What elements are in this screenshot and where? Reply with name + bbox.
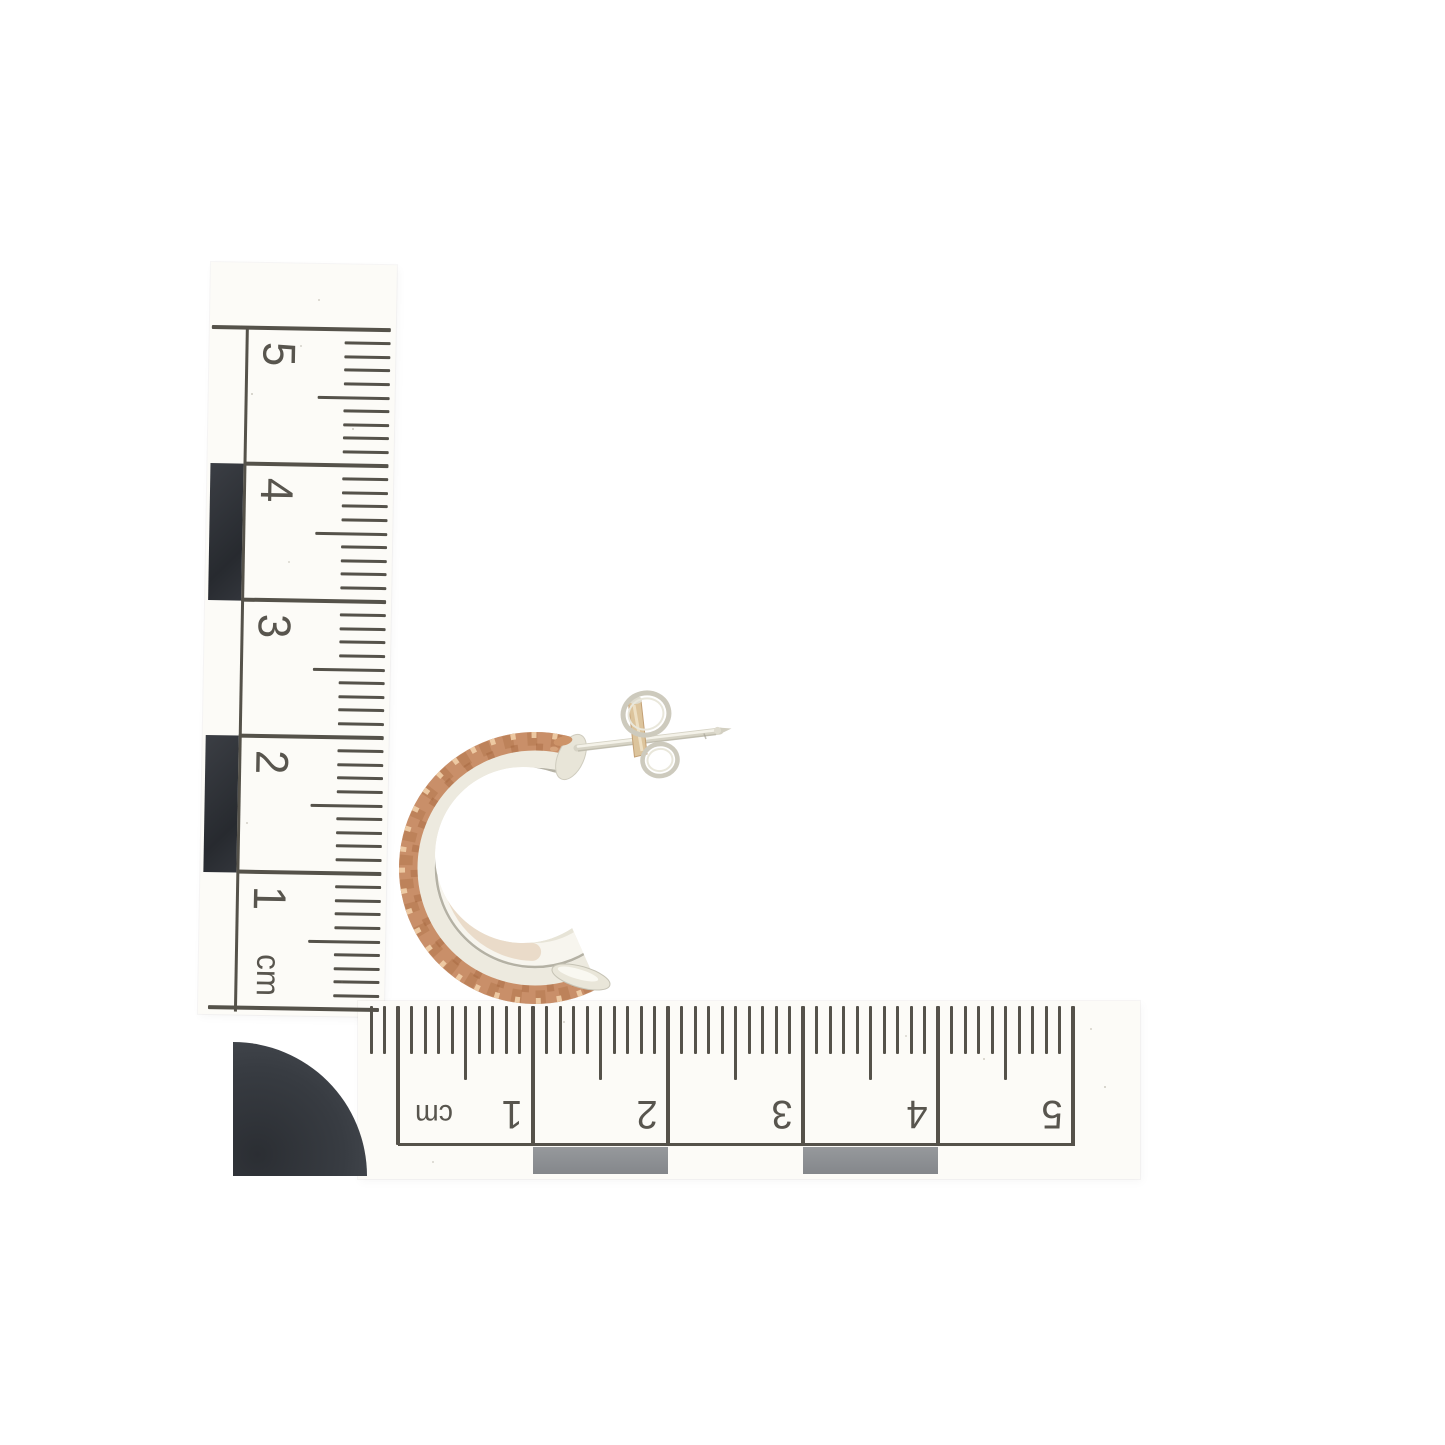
ruler-tick xyxy=(342,477,388,481)
corner-quarter-circle-marker xyxy=(233,1042,367,1176)
ruler-tick xyxy=(801,1006,804,1145)
ruler-tick xyxy=(337,763,383,767)
ruler-tick xyxy=(842,1006,845,1054)
ruler-tick xyxy=(815,1006,818,1054)
ruler-tick xyxy=(236,870,381,876)
ruler-tick xyxy=(950,1006,953,1054)
ruler-tick xyxy=(336,831,382,835)
ruler-tick xyxy=(344,369,390,373)
ruler-tick xyxy=(896,1006,899,1054)
ruler-tick xyxy=(910,1006,913,1054)
horizontal-scale-bar-1-2 xyxy=(533,1147,668,1174)
ruler-tick xyxy=(338,722,384,726)
earring-hoop xyxy=(398,730,672,1005)
ruler-tick xyxy=(334,953,380,957)
ruler-tick xyxy=(856,1006,859,1054)
ruler-tick xyxy=(829,1006,832,1054)
vertical-ruler-label-5: 5 xyxy=(256,342,302,367)
ruler-tick xyxy=(341,545,387,549)
butterfly-ring-top xyxy=(619,688,674,740)
ruler-tick xyxy=(336,858,382,862)
ruler-tick xyxy=(336,845,382,849)
dust-specks xyxy=(0,0,2,2)
ruler-tick xyxy=(239,734,384,740)
ruler-tick xyxy=(344,355,390,359)
ruler-tick xyxy=(339,654,385,658)
vertical-scale-block-2-1 xyxy=(203,735,238,873)
ruler-tick xyxy=(977,1006,980,1054)
ruler-tick xyxy=(334,967,380,971)
ruler-tick xyxy=(340,586,386,590)
ruler-tick xyxy=(343,423,389,427)
earring-hoop-groove-line xyxy=(436,769,634,967)
ruler-tick xyxy=(1058,1006,1061,1054)
earring-photo xyxy=(380,650,770,1050)
ruler-tick xyxy=(991,1006,994,1054)
vertical-ruler-label-4: 4 xyxy=(254,478,300,503)
ruler-tick xyxy=(883,1006,886,1054)
ruler-tick xyxy=(337,749,383,753)
ruler-tick xyxy=(775,1006,778,1054)
ruler-tick xyxy=(337,777,383,781)
ruler-tick xyxy=(241,598,386,604)
ruler-tick xyxy=(308,939,380,943)
horizontal-ruler-label-1: 1 xyxy=(501,1094,522,1134)
ruler-tick xyxy=(344,382,390,386)
ruler-tick xyxy=(343,450,389,454)
ruler-tick xyxy=(345,341,391,345)
ruler-tick xyxy=(334,926,380,930)
ruler-tick xyxy=(341,559,387,563)
horizontal-scale-bar-3-4 xyxy=(803,1147,938,1174)
ruler-tick xyxy=(333,981,379,985)
ruler-tick xyxy=(1045,1006,1048,1054)
horizontal-ruler-label-4: 4 xyxy=(906,1094,927,1134)
ruler-tick xyxy=(338,695,384,699)
horizontal-ruler-unit-label: cm xyxy=(415,1099,453,1129)
ruler-tick xyxy=(340,613,386,617)
ruler-tick xyxy=(318,395,390,399)
vertical-ruler-label-3: 3 xyxy=(251,614,297,639)
vertical-ruler-unit-label: cm xyxy=(252,954,286,996)
horizontal-ruler-baseline xyxy=(398,1143,1075,1146)
vertical-ruler-ink: 5 4 3 2 1 cm xyxy=(198,262,397,1017)
ruler-tick xyxy=(313,667,385,671)
ruler-tick xyxy=(343,437,389,441)
end-face-gold-speck xyxy=(550,747,558,752)
ruler-tick xyxy=(788,1006,791,1054)
vertical-ruler-label-1: 1 xyxy=(247,886,293,911)
ruler-tick xyxy=(341,573,387,577)
ruler-tick xyxy=(212,325,391,332)
ruler-tick xyxy=(1018,1006,1021,1054)
horizontal-ruler-label-5: 5 xyxy=(1041,1094,1062,1134)
ruler-tick xyxy=(338,709,384,713)
ruler-tick xyxy=(936,1006,939,1145)
vertical-ruler-label-2: 2 xyxy=(249,750,295,775)
vertical-scale-block-4-3 xyxy=(208,463,243,601)
ruler-tick xyxy=(869,1006,872,1080)
ruler-tick xyxy=(1031,1006,1034,1054)
butterfly-ring-bottom-inner xyxy=(646,747,674,773)
ruler-tick xyxy=(335,899,381,903)
ruler-tick xyxy=(341,518,387,522)
ruler-tick xyxy=(340,627,386,631)
ruler-tick xyxy=(964,1006,967,1054)
ruler-tick xyxy=(311,803,383,807)
ruler-tick xyxy=(923,1006,926,1054)
ruler-tick xyxy=(1004,1006,1007,1080)
ruler-tick xyxy=(343,409,389,413)
ruler-tick xyxy=(315,531,387,535)
ruler-tick xyxy=(339,641,385,645)
ruler-tick xyxy=(243,462,388,468)
ruler-tick xyxy=(335,885,381,889)
ruler-tick xyxy=(339,681,385,685)
ruler-tick xyxy=(333,994,379,998)
ruler-tick xyxy=(336,817,382,821)
ruler-tick xyxy=(342,505,388,509)
horizontal-ruler-label-2: 2 xyxy=(636,1094,657,1134)
photo-canvas: cm 1 2 3 4 5 5 4 3 2 1 cm xyxy=(0,0,1445,1445)
post-highlight xyxy=(578,730,719,747)
ruler-tick xyxy=(335,913,381,917)
horizontal-ruler-label-3: 3 xyxy=(771,1094,792,1134)
ruler-tick xyxy=(342,491,388,495)
ruler-tick xyxy=(337,790,383,794)
post-tip-bead xyxy=(714,727,721,734)
ruler-tick xyxy=(1071,1006,1074,1145)
